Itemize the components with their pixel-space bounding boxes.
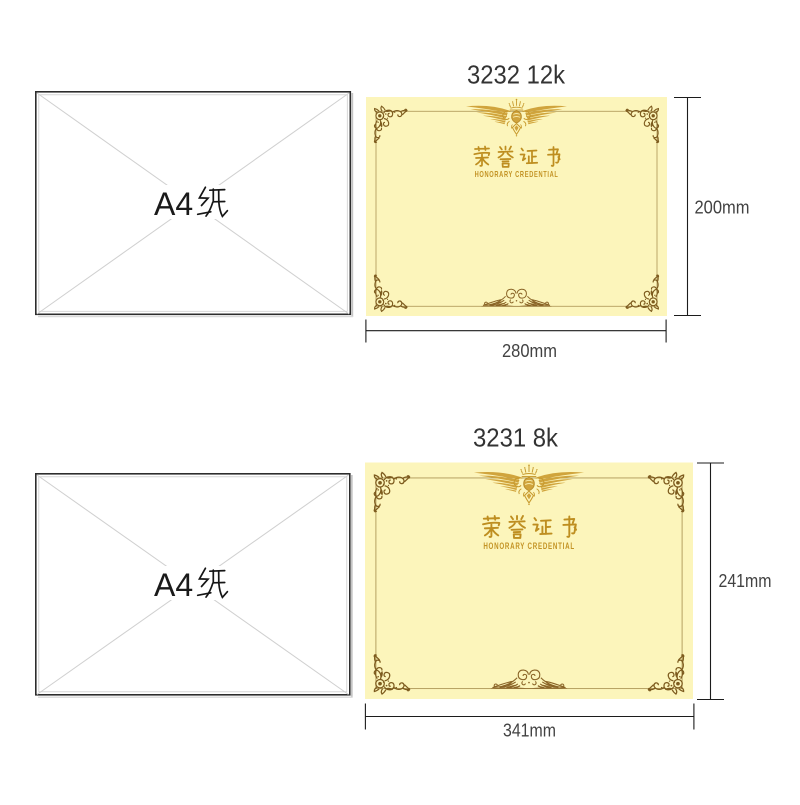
svg-text:241mm: 241mm [719,571,772,591]
svg-text:A4: A4 [154,567,193,603]
svg-text:341mm: 341mm [503,720,556,740]
svg-text:200mm: 200mm [695,198,750,218]
svg-text:280mm: 280mm [502,341,557,361]
svg-text:3231 8k: 3231 8k [473,422,559,452]
svg-text:3232 12k: 3232 12k [467,60,566,90]
svg-text:A4: A4 [154,186,193,222]
